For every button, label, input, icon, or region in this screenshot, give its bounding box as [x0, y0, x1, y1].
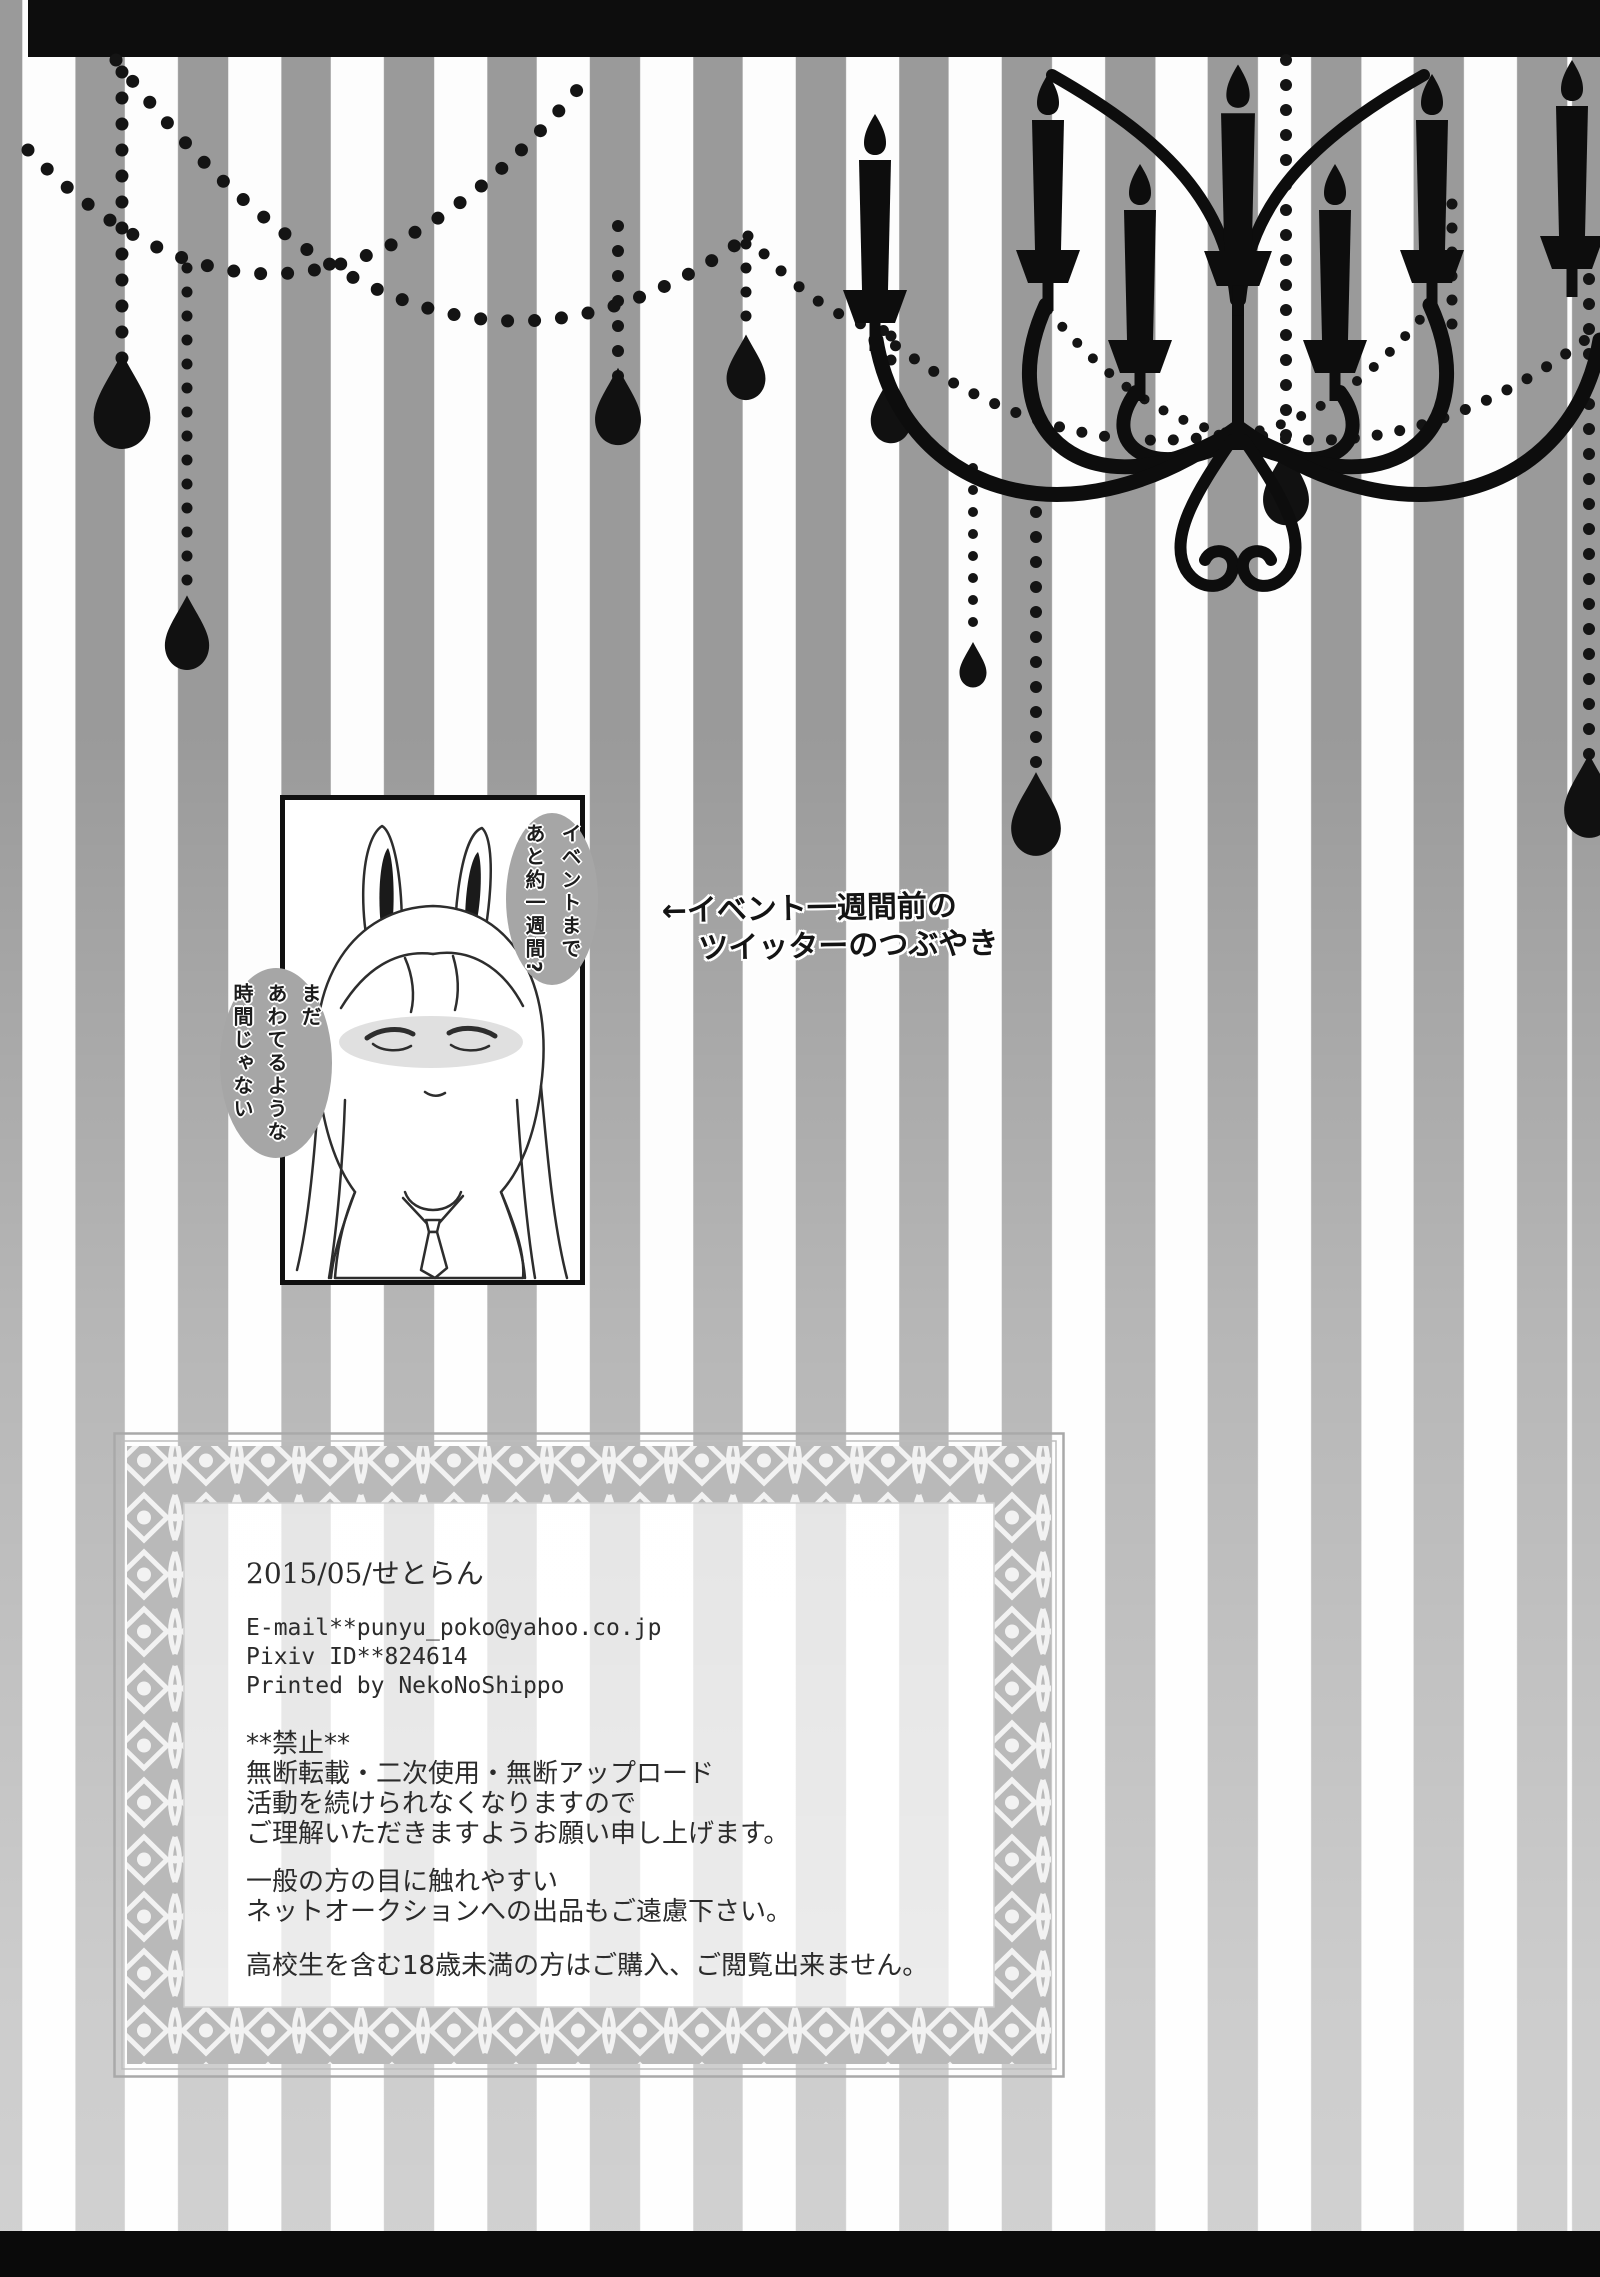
credits-text-block: 2015/05/せとらん E-mail**punyu_poko@yahoo.co… — [246, 1556, 1016, 1981]
prohibition-line-1: 無断転載・二次使用・無断アップロード — [246, 1759, 1016, 1789]
bottom-black-band — [0, 2231, 1600, 2277]
manga-page: イベントまで あと約一週間? まだ あわてるような 時間じゃない ←イベント一週… — [0, 0, 1600, 2277]
speech-bubble-event-countdown: イベントまで あと約一週間? — [506, 813, 598, 985]
annotation-line-2: ツイッターのつぶやき — [698, 925, 999, 968]
auction-notice-line-1: 一般の方の目に触れやすい — [246, 1867, 1016, 1897]
credits-email: E-mail**punyu_poko@yahoo.co.jp — [246, 1614, 1016, 1643]
credits-pixiv-id: Pixiv ID**824614 — [246, 1643, 1016, 1672]
bead-chains — [28, 60, 1598, 782]
speech-bubble-no-panic: まだ あわてるような 時間じゃない — [220, 968, 332, 1158]
annotation-note: ←イベント一週間前の ツイッターのつぶやき — [661, 887, 998, 969]
prohibition-line-3: ご理解いただきますようお願い申し上げます。 — [246, 1819, 1016, 1849]
auction-notice-line-2: ネットオークションへの出品もご遠慮下さい。 — [246, 1897, 1016, 1927]
prohibition-heading: **禁止** — [246, 1729, 1016, 1759]
top-black-band — [28, 0, 1600, 57]
credits-date-circle: 2015/05/せとらん — [246, 1556, 1016, 1592]
age-restriction-notice: 高校生を含む18歳未満の方はご購入、ご閲覧出来ません。 — [246, 1951, 1016, 1981]
annotation-line-1: ←イベント一週間前の — [661, 887, 998, 931]
prohibition-line-2: 活動を続けられなくなりますので — [246, 1789, 1016, 1819]
chandelier-decoration — [0, 0, 1600, 900]
credits-printed-by: Printed by NekoNoShippo — [246, 1672, 1016, 1701]
teardrop-beads — [94, 335, 1600, 856]
